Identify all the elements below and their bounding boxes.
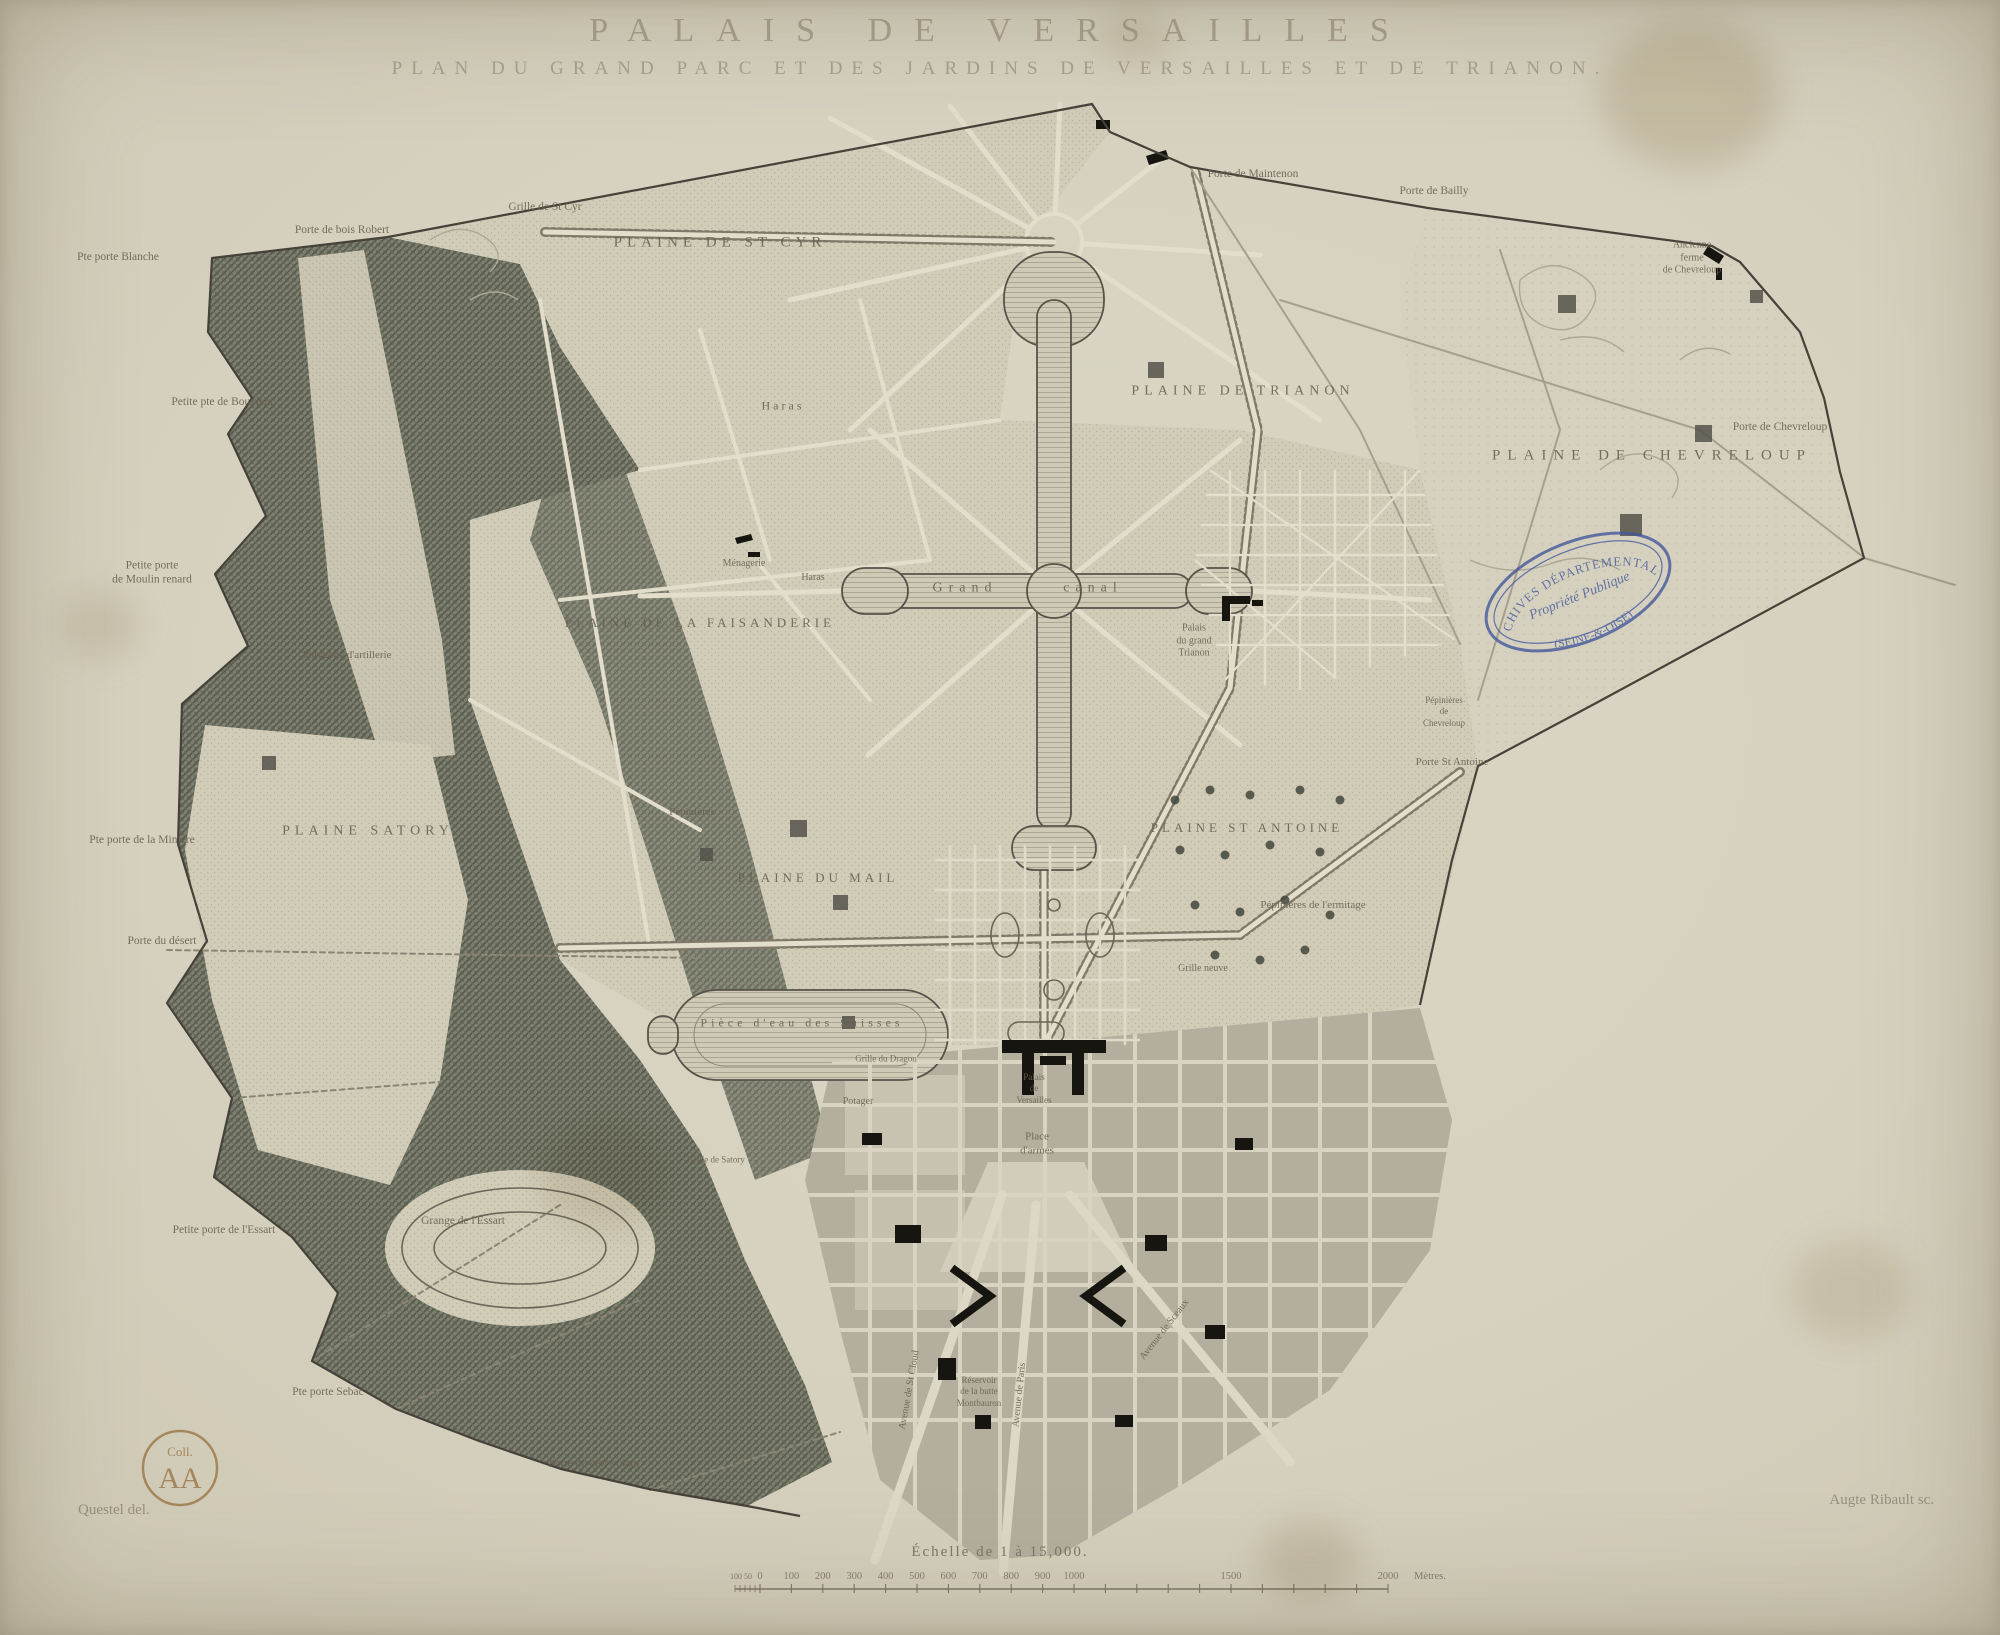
map-label: Haras [762, 399, 805, 414]
map-label: Petite porte de l'Essart [173, 1223, 276, 1237]
map-label: Porte de Bailly [1400, 184, 1469, 198]
map-label: Porte du cerf volant [548, 1457, 639, 1471]
map-label: PLAINE DE ST CYR [614, 234, 827, 253]
map-label: PLAINE DE CHEVRELOUP [1492, 447, 1812, 466]
map-label: PLAINE DU MAIL [738, 870, 899, 886]
map-label: Avenue de Paris [1010, 1362, 1029, 1428]
map-label: Place d'armes [1020, 1130, 1054, 1158]
map-label: PLAINE DE LA FAISANDERIE [565, 615, 835, 631]
map-label: Petite porte de Moulin renard [112, 559, 192, 588]
map-label: PLAINE SATORY [282, 822, 454, 840]
map-label: Grange de l'Essart [421, 1214, 505, 1228]
map-label: Pépinières [669, 806, 715, 820]
map-label: Porte St Antoine [1416, 756, 1489, 770]
map-label: Pte porte Sebac [292, 1385, 364, 1399]
map-label: Petite pte de Bouviers [171, 395, 272, 409]
map-label: Avenue de St Cloud [897, 1349, 923, 1430]
map-label: Grille neuve [1178, 963, 1228, 976]
map-label: Pte porte Blanche [77, 250, 159, 264]
map-label: Porte de Chevreloup [1733, 420, 1828, 434]
map-label: Porte de Maintenon [1208, 167, 1299, 181]
engraver-credit: Augte Ribault sc. [1829, 1492, 1934, 1509]
map-title: PALAIS DE VERSAILLES [0, 12, 2000, 50]
map-label: Pte porte de la Minière [89, 833, 194, 847]
map-label: Avenue de Sceaux [1137, 1297, 1192, 1363]
map-label: Potager [843, 1096, 874, 1109]
scale-caption: Échelle de 1 à 15,000. [0, 1544, 2000, 1561]
map-label: Grille de St Cyr [508, 200, 581, 214]
map-label: Ménagerie [723, 558, 766, 571]
map-label: Polygone d'artillerie [302, 649, 391, 663]
map-label: Palais du grand Trianon [1176, 622, 1211, 660]
map-label: PLAINE ST ANTOINE [1151, 820, 1343, 836]
map-label: Porte de bois Robert [295, 223, 389, 237]
map-label: Grille du Dragon [855, 1053, 916, 1064]
map-label: Pépinières de l'ermitage [1260, 899, 1365, 913]
map-label: Ancienne ferme de Chevreloup [1663, 239, 1722, 277]
scanned-map-page: { "title": "PALAIS DE VERSAILLES", "subt… [0, 0, 2000, 1635]
map-label: Pièce d'eau des Suisses [700, 1016, 903, 1031]
map-subtitle: PLAN DU GRAND PARC ET DES JARDINS DE VER… [0, 58, 2000, 80]
map-label: Grille de Satory [687, 1154, 745, 1165]
map-label: PLAINE DE TRIANON [1131, 382, 1354, 400]
draftsman-credit: Questel del. [78, 1502, 150, 1519]
map-label: Palais de Versailles [1017, 1072, 1052, 1106]
map-label: Réservoir de la butte Montbauron [957, 1375, 1002, 1409]
map-label: canal [1063, 579, 1123, 597]
map-label: Porte du désert [128, 934, 197, 948]
map-label: Pépinières de Chevreloup [1423, 695, 1465, 729]
map-labels-layer: PLAINE DE ST CYRPLAINE DE TRIANONPLAINE … [0, 0, 2000, 1635]
map-label: Grand [933, 579, 998, 597]
map-label: Haras [801, 572, 824, 585]
